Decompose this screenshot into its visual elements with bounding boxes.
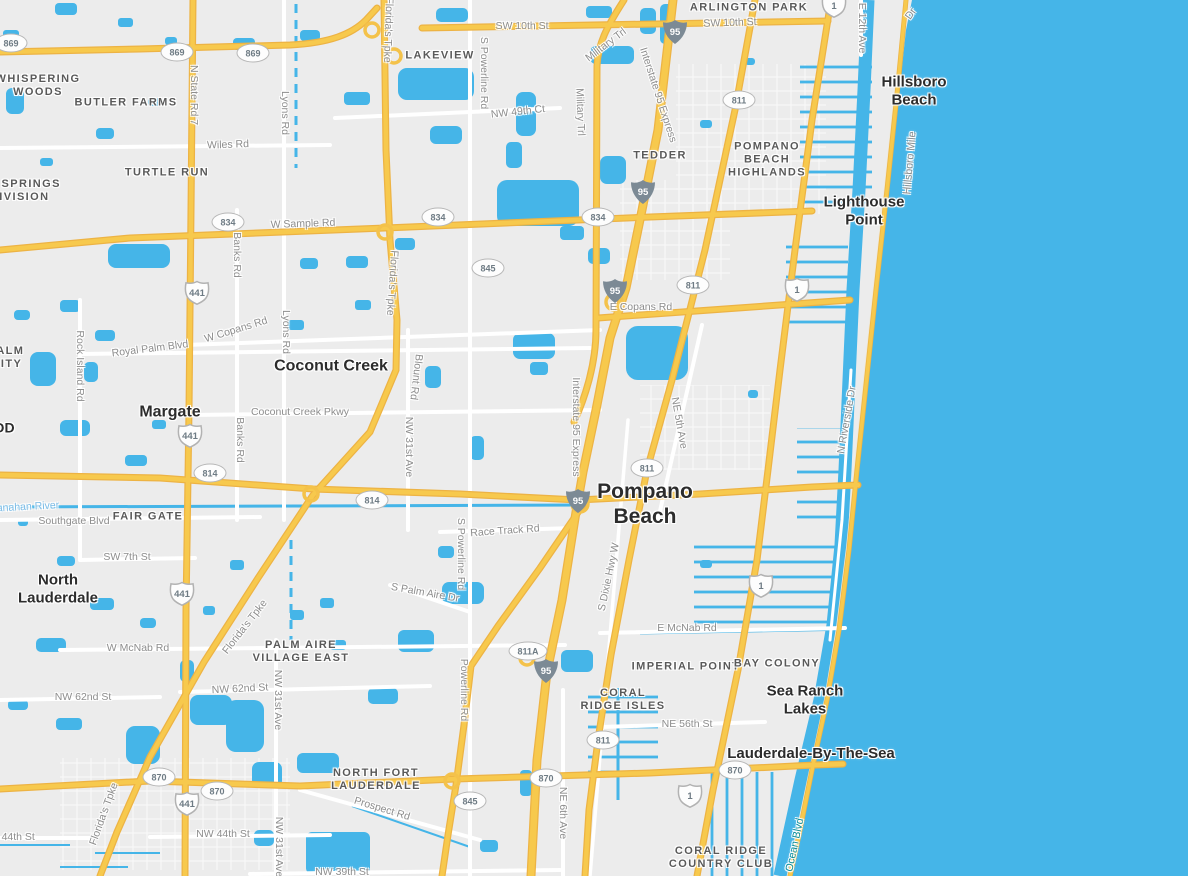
route-shield-oval: 814 xyxy=(194,464,227,483)
place-label-line: BAY COLONY xyxy=(734,658,820,671)
place-label-line: COUNTRY CLUB xyxy=(669,858,773,871)
road-label: Prospect Rd xyxy=(353,795,412,824)
place-label-city[interactable]: NorthLauderdale xyxy=(18,571,98,606)
road-label: SW 7th St xyxy=(103,551,150,563)
place-label-line: CORAL xyxy=(580,687,665,700)
place-label-line: Lauderdale xyxy=(18,589,98,607)
place-label-line: ARLINGTON PARK xyxy=(690,2,808,15)
road-label: Florida's Tpke xyxy=(384,250,401,316)
route-shield-us: 441 xyxy=(174,791,201,817)
route-shield-oval: 845 xyxy=(472,259,505,278)
route-shield-oval: 870 xyxy=(143,768,176,787)
route-number: 870 xyxy=(538,773,553,783)
route-number: 870 xyxy=(151,772,166,782)
place-label-line: Lakes xyxy=(767,700,844,718)
route-number: 834 xyxy=(220,217,235,227)
route-number: 95 xyxy=(610,286,621,297)
place-label-line: BEACH xyxy=(728,154,806,167)
route-shield-us: 441 xyxy=(184,280,211,306)
road-label: Powerline Rd xyxy=(458,659,470,721)
route-shield-oval: 869 xyxy=(0,34,28,53)
road-label: Military Trl xyxy=(583,26,629,65)
place-label-neighborhood[interactable]: FAIR GATE xyxy=(113,511,183,524)
road-label: NW 62nd St xyxy=(211,681,268,696)
route-shield-oval: 870 xyxy=(530,769,563,788)
road-label: E 12th Ave xyxy=(856,3,868,54)
route-number: 834 xyxy=(590,212,605,222)
place-label-line: WOODS xyxy=(0,86,80,99)
place-label-neighborhood[interactable]: ROYAL PALMCOMMUNITY xyxy=(0,345,24,371)
route-number: 845 xyxy=(480,263,495,273)
route-number: 870 xyxy=(727,765,742,775)
route-number: 811 xyxy=(732,95,747,105)
route-shield-us: 1 xyxy=(784,277,811,303)
road-label: Wiles Rd xyxy=(207,138,249,152)
place-label-line: CORAL SPRINGS xyxy=(0,178,61,191)
road-label: Race Track Rd xyxy=(470,522,540,539)
road-label: NW 49th Ct xyxy=(490,103,545,121)
route-number: 814 xyxy=(202,468,217,478)
route-shield-us: 441 xyxy=(169,581,196,607)
place-label-line: TEDDER xyxy=(633,150,687,163)
route-number: 441 xyxy=(179,799,195,810)
route-shield-oval: 811 xyxy=(587,731,620,750)
road-label: NE 5th Ave xyxy=(668,396,689,450)
road-label: NE 56th St xyxy=(662,718,713,730)
route-shield-oval: 811 xyxy=(631,459,664,478)
place-label-line: ROYAL PALM xyxy=(0,345,24,358)
place-label-line: SUBDIVISION xyxy=(0,191,61,204)
route-shield-oval: 814 xyxy=(356,491,389,510)
place-label-neighborhood[interactable]: PALM AIREVILLAGE EAST xyxy=(253,639,350,665)
place-label-line: TURTLE RUN xyxy=(125,167,209,180)
road-label: W McNab Rd xyxy=(107,642,169,654)
route-number: 811 xyxy=(596,735,611,745)
place-label-line: LAUDERDALE xyxy=(331,780,421,793)
route-number: 814 xyxy=(364,495,379,505)
place-label-neighborhood[interactable]: CORAL SPRINGSSUBDIVISION xyxy=(0,178,61,204)
route-number: 441 xyxy=(182,431,198,442)
place-label-neighborhood[interactable]: NORTH FORTLAUDERDALE xyxy=(331,767,421,793)
route-shield-oval: 811 xyxy=(723,91,756,110)
route-shield-oval: 870 xyxy=(719,761,752,780)
place-label-city[interactable]: HillsboroBeach xyxy=(881,73,946,108)
place-label-line: Lauderdale-By-The-Sea xyxy=(727,745,895,763)
place-label-line: NORTH FORT xyxy=(331,767,421,780)
place-label-neighborhood[interactable]: BUTLER FARMS xyxy=(75,97,178,110)
route-number: 869 xyxy=(245,48,260,58)
road-label: Banks Rd xyxy=(231,232,243,278)
place-label-line: RIDGE ISLES xyxy=(580,700,665,713)
place-label-line: FAIR GATE xyxy=(113,511,183,524)
route-shield-us: 1 xyxy=(821,0,848,19)
road-label: Lyons Rd xyxy=(279,91,291,135)
map-viewport[interactable]: PompanoBeachMargateCoconut CreekNorthLau… xyxy=(0,0,1188,876)
route-shield-oval: 811 xyxy=(677,276,710,295)
road-label: Military Trl xyxy=(573,88,587,136)
road-label: N State Rd 7 xyxy=(188,65,200,125)
place-label-line: IMPERIAL POINT xyxy=(632,661,741,674)
place-label-line: LAKEVIEW xyxy=(405,50,474,63)
place-label-neighborhood[interactable]: WHISPERINGWOODS xyxy=(0,73,80,99)
road-label: Florida's Tpke xyxy=(87,781,121,847)
route-shield-interstate: 95 xyxy=(630,179,657,205)
place-label-line: PALM AIRE xyxy=(253,639,350,652)
route-number: 811A xyxy=(517,646,538,656)
road-label: Rock Island Rd xyxy=(74,330,86,401)
place-label-line: CORAL RIDGE xyxy=(669,845,773,858)
place-label-city[interactable]: PompanoBeach xyxy=(597,480,693,530)
route-number: 95 xyxy=(638,187,649,198)
place-label-city[interactable]: Coconut Creek xyxy=(274,358,388,377)
road-label: NW 31st Ave xyxy=(272,670,284,731)
place-label-line: Hillsboro xyxy=(881,73,946,91)
road-label: S Powerline Rd xyxy=(455,518,467,590)
place-label-line: COMMUNITY xyxy=(0,358,24,371)
route-number: 811 xyxy=(686,280,701,290)
road-label: NW 62nd St xyxy=(55,691,112,703)
place-label-line: Beach xyxy=(881,91,946,109)
road-label: Banks Rd xyxy=(234,417,246,463)
route-shield-us: 1 xyxy=(677,783,704,809)
road-label: NW 31st Ave xyxy=(273,817,285,876)
road-label: Interstate 95 Express xyxy=(570,377,582,476)
place-label-city[interactable]: Margate xyxy=(139,404,200,423)
route-shield-oval: 870 xyxy=(201,782,234,801)
route-number: 95 xyxy=(573,496,584,507)
road-label: NW 44th St xyxy=(0,831,35,843)
place-label-neighborhood[interactable]: ARLINGTON PARK xyxy=(690,2,808,15)
place-label-neighborhood[interactable]: LAKEVIEW xyxy=(405,50,474,63)
place-label-line: Lighthouse xyxy=(824,193,905,211)
route-number: 441 xyxy=(189,288,205,299)
route-number: 1 xyxy=(687,791,692,802)
route-number: 95 xyxy=(541,666,552,677)
route-shield-interstate: 95 xyxy=(602,278,629,304)
route-shield-oval: 834 xyxy=(212,213,245,232)
road-label: S Powerline Rd xyxy=(478,37,490,109)
place-label-neighborhood[interactable]: IMPERIAL POINT xyxy=(632,661,741,674)
water-label: anahan River xyxy=(0,499,60,515)
place-label-neighborhood[interactable]: BAY COLONY xyxy=(734,658,820,671)
place-label-city[interactable]: LighthousePoint xyxy=(824,193,905,228)
route-number: 1 xyxy=(758,581,763,592)
road-label: S Dixie Hwy W xyxy=(596,542,623,612)
road-label: Royal Palm Blvd xyxy=(111,338,189,360)
route-shield-interstate: 95 xyxy=(565,488,592,514)
place-label-neighborhood[interactable]: CORAL RIDGECOUNTRY CLUB xyxy=(669,845,773,871)
road-label: S Palm Aire Dr xyxy=(390,581,460,605)
place-label-line: WOOD xyxy=(0,420,15,437)
place-label-line: Point xyxy=(824,211,905,229)
road-label: E McNab Rd xyxy=(657,622,717,634)
road-label: N Riverside Dr xyxy=(835,385,859,454)
place-label-line: POMPANO xyxy=(728,141,806,154)
place-label-line: Margate xyxy=(139,404,200,423)
place-label-neighborhood[interactable]: TURTLE RUN xyxy=(125,167,209,180)
road-label: SW 10th St xyxy=(495,20,548,32)
place-label-neighborhood[interactable]: POMPANOBEACHHIGHLANDS xyxy=(728,141,806,180)
road-label: NW 39th St xyxy=(315,866,369,876)
road-label: NE 6th Ave xyxy=(557,787,569,839)
road-label: Coconut Creek Pkwy xyxy=(251,406,349,418)
place-label-city[interactable]: Lauderdale-By-The-Sea xyxy=(727,745,895,763)
map-labels-layer: PompanoBeachMargateCoconut CreekNorthLau… xyxy=(0,0,1188,876)
place-label-line: Sea Ranch xyxy=(767,682,844,700)
route-shield-oval: 834 xyxy=(582,208,615,227)
place-label-line: VILLAGE EAST xyxy=(253,652,350,665)
route-number: 811 xyxy=(640,463,655,473)
place-label-city[interactable]: Sea RanchLakes xyxy=(767,682,844,717)
route-shield-oval: 869 xyxy=(237,44,270,63)
place-label-neighborhood[interactable]: CORALRIDGE ISLES xyxy=(580,687,665,713)
route-number: 834 xyxy=(430,212,445,222)
road-label: Dr xyxy=(903,6,920,22)
route-number: 869 xyxy=(3,38,18,48)
place-label-line: Pompano xyxy=(597,480,693,505)
route-shield-interstate: 95 xyxy=(533,658,560,684)
place-label-line: North xyxy=(18,571,98,589)
route-shield-us: 441 xyxy=(177,423,204,449)
road-label: Southgate Blvd xyxy=(38,515,109,527)
place-label-line: BUTLER FARMS xyxy=(75,97,178,110)
route-number: 441 xyxy=(174,589,190,600)
route-number: 869 xyxy=(169,47,184,57)
route-number: 845 xyxy=(462,796,477,806)
road-label: Blount Rd xyxy=(407,353,425,400)
place-label-neighborhood[interactable]: TEDDER xyxy=(633,150,687,163)
route-shield-us: 1 xyxy=(748,573,775,599)
route-shield-oval: 834 xyxy=(422,208,455,227)
place-label-city[interactable]: WOOD xyxy=(0,420,15,437)
route-shield-interstate: 95 xyxy=(662,19,689,45)
place-label-line: Coconut Creek xyxy=(274,358,388,377)
road-label: W Sample Rd xyxy=(270,217,335,232)
route-number: 1 xyxy=(794,285,799,296)
route-number: 95 xyxy=(670,27,681,38)
road-label: SW 10th St xyxy=(703,16,757,30)
road-label: Interstate 95 Express xyxy=(637,46,679,144)
road-label: Lyons Rd xyxy=(280,310,292,354)
place-label-line: HIGHLANDS xyxy=(728,166,806,179)
road-label: Ocean Blvd xyxy=(783,817,806,873)
route-shield-oval: 845 xyxy=(454,792,487,811)
road-label: NW 44th St xyxy=(196,828,250,840)
route-number: 1 xyxy=(831,1,836,12)
place-label-line: Beach xyxy=(597,505,693,530)
route-number: 870 xyxy=(209,786,224,796)
road-label: NW 31st Ave xyxy=(403,417,415,478)
road-label: Florida's Tpke xyxy=(381,0,396,63)
road-label: W Copans Rd xyxy=(203,315,269,346)
place-label-line: WHISPERING xyxy=(0,73,80,86)
road-label: Hillsboro Mile xyxy=(901,131,919,195)
route-shield-oval: 869 xyxy=(161,43,194,62)
